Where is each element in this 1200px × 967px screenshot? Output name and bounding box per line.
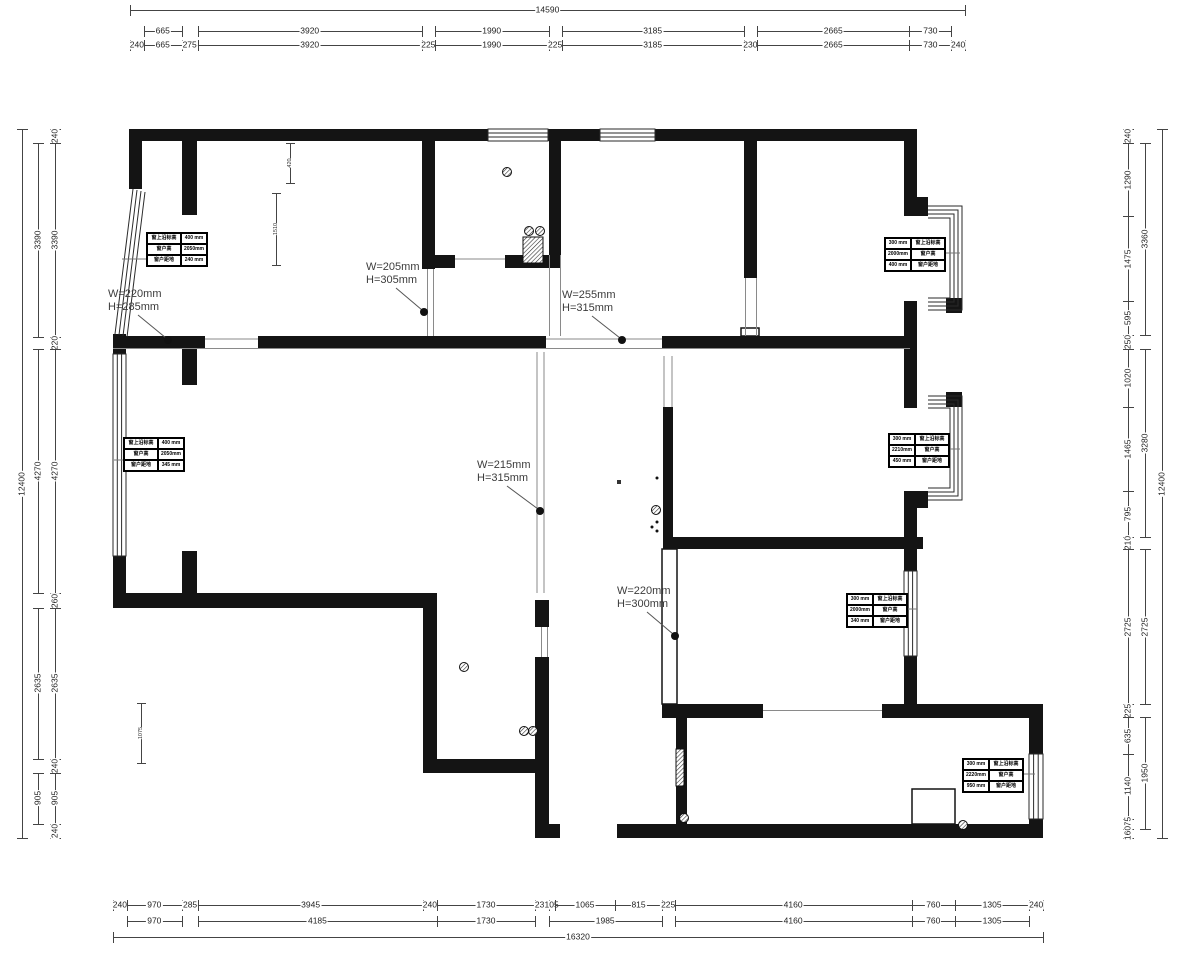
radiator-icon — [523, 237, 543, 263]
annotation-graphics — [114, 168, 1035, 830]
beam-location-dot — [164, 336, 172, 344]
beam-location-dot — [671, 632, 679, 640]
beam-leader-line — [138, 315, 166, 338]
openings — [113, 255, 910, 711]
beam-leader-line — [396, 288, 422, 310]
floor-drain-icon — [525, 227, 534, 236]
beam-location-dot — [536, 507, 544, 515]
floor-drain-icon — [529, 727, 538, 736]
beam-leader-line — [507, 486, 538, 509]
beam-location-dot — [618, 336, 626, 344]
pipe-square-icon — [617, 480, 621, 484]
beam-location-dot — [420, 308, 428, 316]
pipe-dot-icon — [656, 521, 659, 524]
pipe-dot-icon — [656, 530, 659, 533]
pipe-dot-icon — [651, 526, 654, 529]
floor-drain-icon — [652, 506, 661, 515]
floor-drain-icon — [503, 168, 512, 177]
beam-leader-line — [647, 612, 673, 634]
pipe-dot-icon — [656, 477, 659, 480]
floor-drain-icon — [520, 727, 529, 736]
floor-drain-icon — [536, 227, 545, 236]
walls — [113, 129, 1043, 838]
floor-drain-icon — [460, 663, 469, 672]
floor-drain-icon — [680, 814, 689, 823]
radiator-icon — [676, 749, 684, 786]
floor-plan-canvas — [0, 0, 1200, 967]
beam-leader-line — [592, 316, 620, 338]
floorplan-page: { "meta": { "bg": "#ffffff", "wall_color… — [0, 0, 1200, 967]
floor-drain-icon — [959, 821, 968, 830]
